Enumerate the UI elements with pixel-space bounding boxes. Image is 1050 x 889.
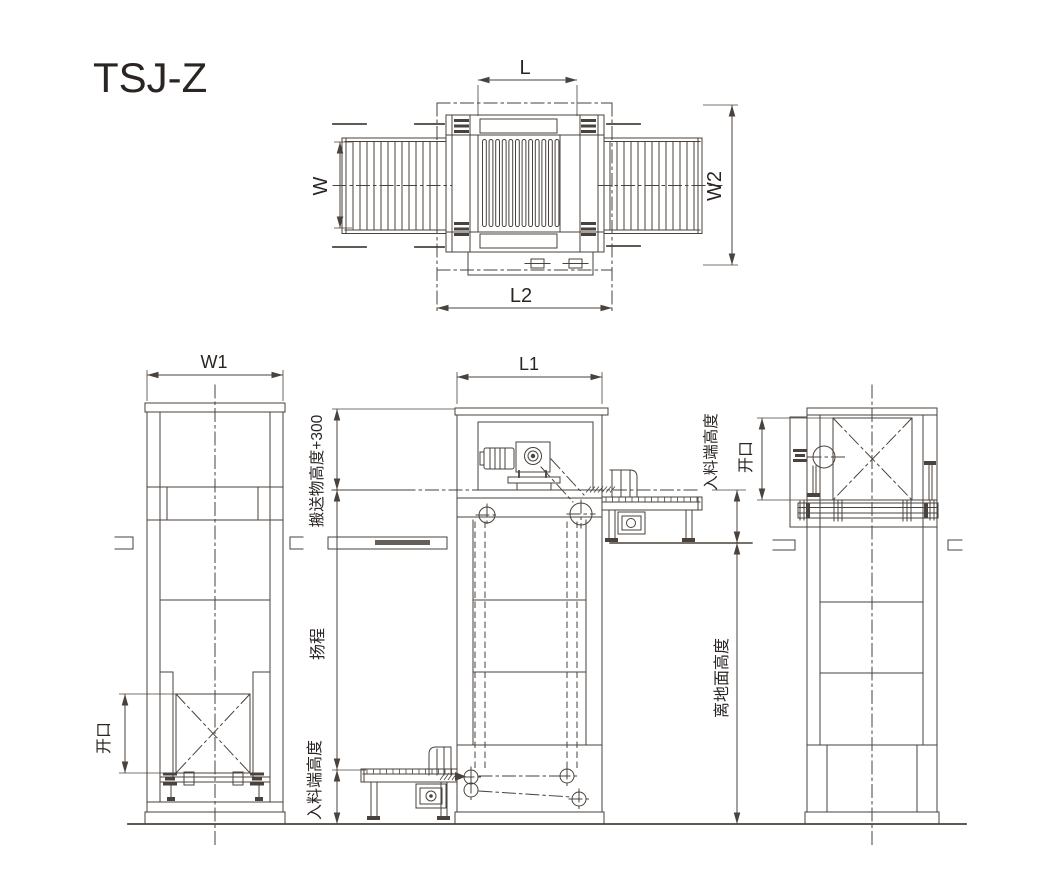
dim-chain-right: 入料端高度 离地面高度 — [702, 413, 746, 824]
dim-L2: L2 — [437, 285, 612, 308]
lower-infeed-conveyor — [361, 747, 466, 820]
plan-platform-slats — [483, 140, 559, 227]
drawing-title: TSJ-Z — [93, 54, 207, 101]
right-sprocket-wheel — [793, 446, 936, 500]
dim-label-infeed-top: 入料端高度 — [702, 413, 720, 491]
upper-floor-slab — [115, 537, 962, 550]
top-view: L L2 W W2 — [310, 57, 738, 312]
dim-label-floor-height: 离地面高度 — [713, 638, 731, 718]
dim-label-W2: W2 — [704, 171, 726, 201]
plan-lift-platform — [446, 115, 604, 275]
bottom-sprockets — [461, 766, 589, 809]
dim-label-carry-clearance: 搬送物高度+300 — [308, 414, 326, 527]
dim-label-L2: L2 — [510, 285, 532, 307]
dim-opening-left: 开口 — [96, 694, 176, 773]
dim-chain-left: 搬送物高度+300 扬程 入料端高度 — [306, 409, 455, 824]
front-tower-base — [455, 812, 604, 824]
left-view: W1 开口 — [96, 352, 285, 845]
dim-label-opening-left: 开口 — [96, 722, 113, 754]
dim-label-lift-stroke: 扬程 — [309, 628, 327, 660]
dim-L: L — [478, 57, 577, 116]
dim-L1: L1 — [457, 354, 602, 404]
dim-W2: W2 — [703, 105, 738, 265]
drawing-canvas: TSJ-Z — [0, 0, 1050, 889]
dim-label-L: L — [519, 57, 530, 79]
right-conveyor-shaft — [798, 500, 938, 521]
left-opening — [176, 694, 250, 773]
dim-label-W: W — [310, 176, 332, 195]
plan-bracket-bolt-left — [525, 259, 550, 268]
right-view: 开口 入料端高度 离地面高度 — [702, 385, 939, 845]
upper-conveyor-guard — [610, 470, 637, 497]
dim-opening-right: 开口 — [738, 418, 833, 500]
upper-discharge-conveyor — [602, 470, 752, 543]
front-tower-cap — [455, 408, 608, 415]
plan-bracket-bolt-right — [563, 259, 588, 268]
plan-left-roller-conveyor — [333, 124, 452, 247]
dim-label-infeed-bottom: 入料端高度 — [306, 740, 324, 820]
dim-label-opening-right: 开口 — [738, 441, 755, 473]
dim-label-W1: W1 — [201, 352, 228, 372]
dim-label-L1: L1 — [519, 354, 539, 374]
front-view: L1 搬送物高度+300 扬程 入料端高度 — [306, 354, 752, 824]
gearmotor — [480, 442, 560, 490]
